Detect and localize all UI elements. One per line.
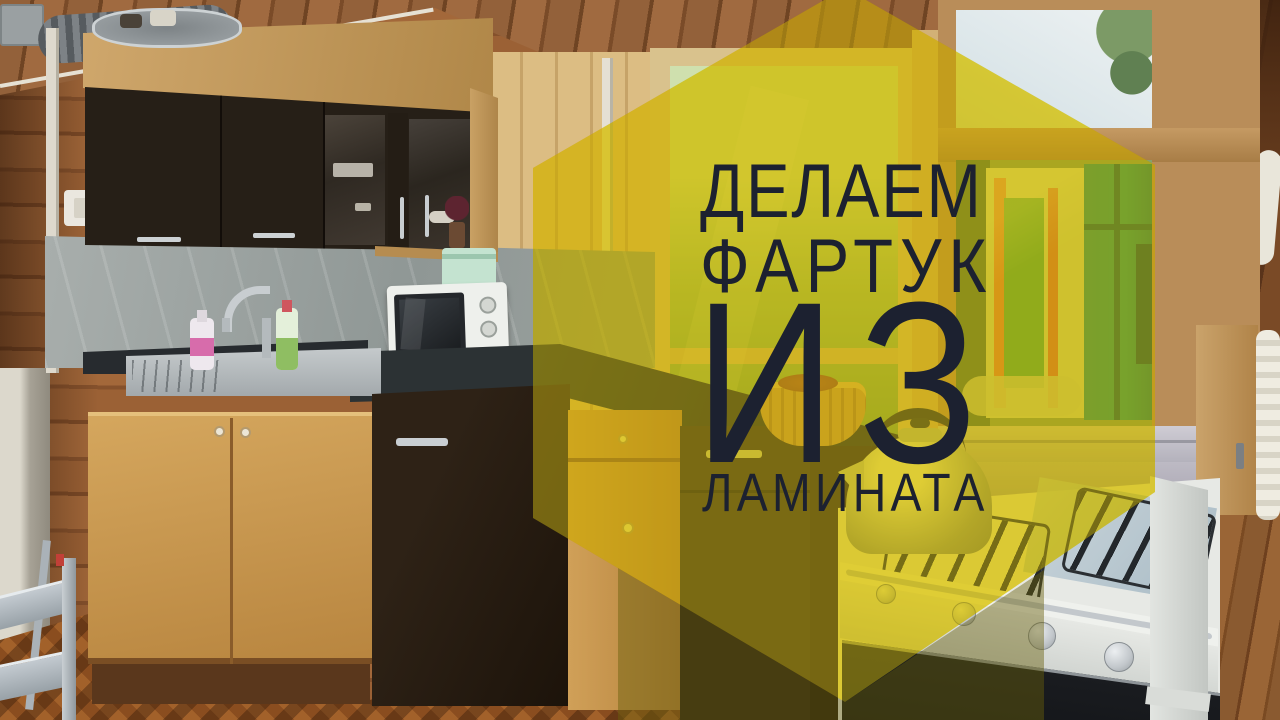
flower-pot <box>449 222 465 248</box>
cabinet-handle <box>400 197 404 239</box>
dish-soap-bottle <box>276 308 298 370</box>
soap-bottle-pink <box>190 318 214 370</box>
ladder-red-mark <box>56 554 64 566</box>
ladder-rail <box>62 558 76 720</box>
microwave-door <box>394 292 466 354</box>
cabinet-handle <box>425 195 429 237</box>
faucet-stem <box>262 318 271 358</box>
soap-liquid <box>276 338 298 370</box>
microwave-dial <box>480 320 498 338</box>
stove-knob <box>1104 642 1134 672</box>
dish-brush <box>150 10 176 26</box>
soap-pump <box>197 310 207 322</box>
cabinet-handle <box>396 438 448 446</box>
video-thumbnail: ДЕЛАЕМ ФАРТУК ИЗ ЛАМИНАТА <box>0 0 1280 720</box>
sealant-foam-bead <box>1256 330 1280 520</box>
cabinet-plinth <box>92 658 370 704</box>
cabinet-handle <box>137 237 181 242</box>
tree-foliage <box>1102 48 1152 110</box>
microwave-dial <box>479 296 497 314</box>
soap-cap <box>282 300 292 312</box>
glass-door <box>325 115 385 245</box>
cups <box>355 203 371 211</box>
ladder-step <box>0 651 64 701</box>
door-gap <box>220 85 222 255</box>
ladder-step <box>0 580 62 629</box>
soap-label <box>190 338 214 356</box>
dish-rack <box>333 163 373 177</box>
glass-door <box>409 119 475 249</box>
upper-cabinet-doors <box>85 85 497 255</box>
faucet-spout <box>222 318 230 332</box>
cabinet-door-gap <box>230 418 233 664</box>
cabinet-handle <box>253 233 295 238</box>
sponge <box>120 14 142 28</box>
stove-side-panel <box>1150 476 1208 720</box>
window-hinge <box>1236 443 1244 469</box>
cabinet-mid-stile <box>388 113 408 253</box>
upper-cabinet-oak-side <box>470 88 498 256</box>
cabinet-knob <box>214 426 225 437</box>
cabinet-knob <box>240 427 251 438</box>
title-line-4: ЛАМИНАТА <box>702 466 989 520</box>
title-line-1: ДЕЛАЕМ <box>700 154 983 230</box>
